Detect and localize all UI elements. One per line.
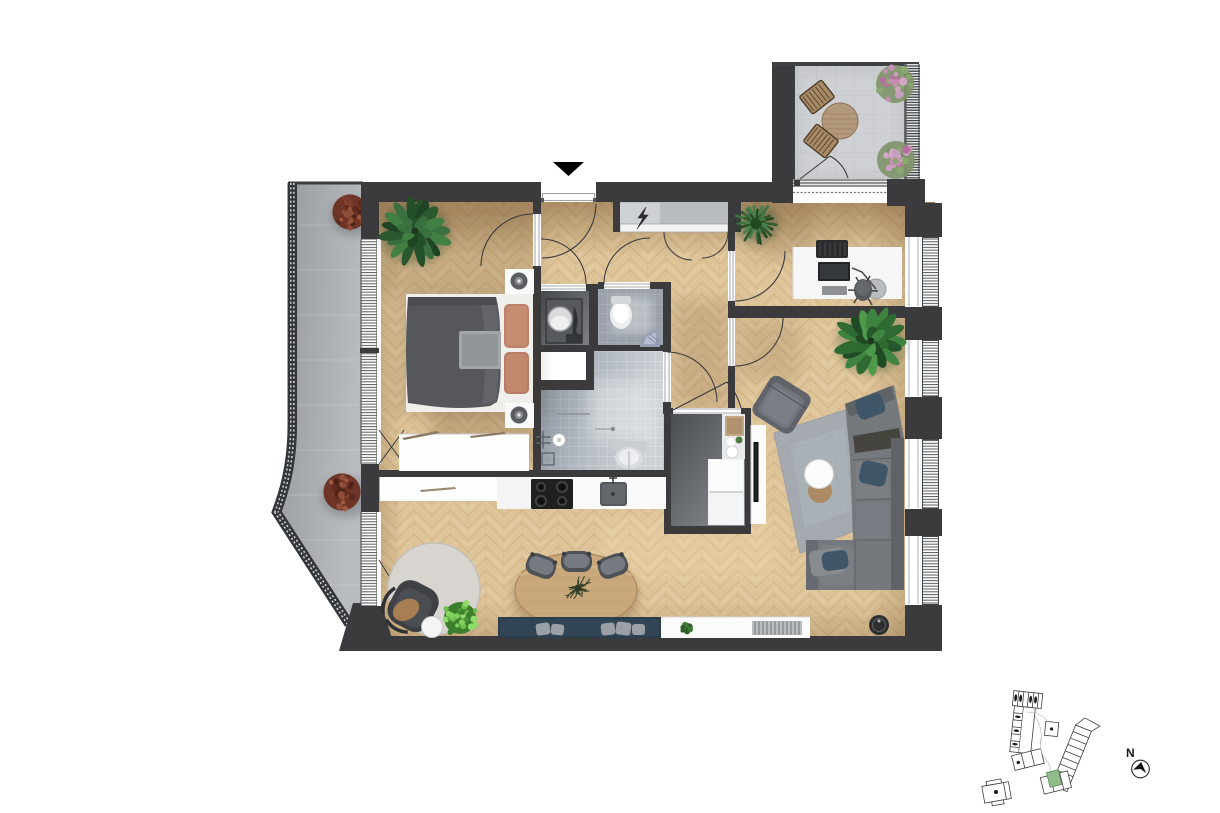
svg-text:N: N (1126, 746, 1135, 760)
